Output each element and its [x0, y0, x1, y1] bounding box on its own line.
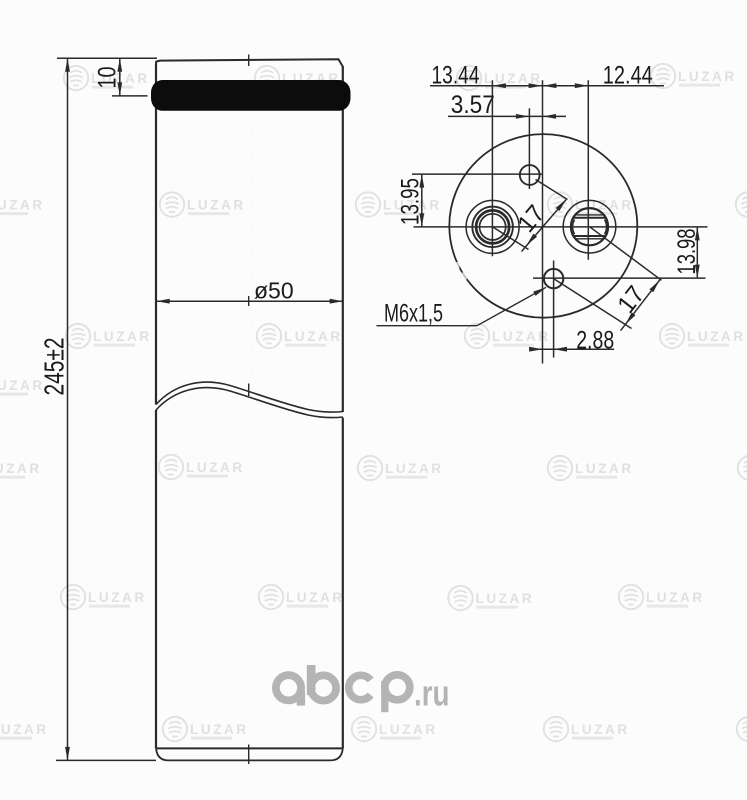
svg-text:ø50: ø50: [254, 277, 294, 303]
svg-text:10: 10: [94, 67, 122, 89]
svg-text:2.88: 2.88: [576, 327, 614, 355]
svg-text:12.44: 12.44: [603, 62, 653, 90]
svg-text:13.98: 13.98: [673, 229, 701, 275]
svg-text:.ru: .ru: [414, 673, 450, 714]
svg-text:13.95: 13.95: [397, 178, 425, 225]
svg-text:M6x1,5: M6x1,5: [384, 300, 443, 328]
svg-text:13.44: 13.44: [432, 62, 480, 90]
svg-text:3.57: 3.57: [451, 91, 495, 119]
svg-text:245±2: 245±2: [38, 338, 69, 396]
